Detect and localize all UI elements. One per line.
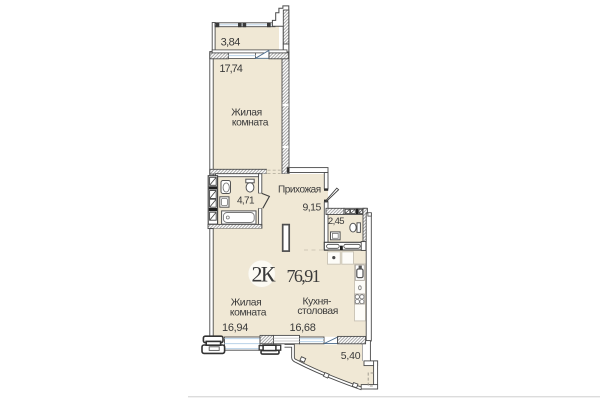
svg-text:столовая: столовая [297,306,338,317]
svg-text:2К: 2К [251,262,275,287]
svg-text:комната: комната [232,117,269,128]
svg-text:3,84: 3,84 [221,36,241,48]
svg-text:76,91: 76,91 [287,266,320,286]
svg-text:4,71: 4,71 [237,195,255,206]
svg-text:5,40: 5,40 [341,350,361,362]
svg-text:17,74: 17,74 [219,63,242,75]
svg-text:16,68: 16,68 [290,322,316,334]
svg-text:комната: комната [230,308,267,319]
svg-text:9,15: 9,15 [303,202,322,214]
svg-text:Прихожая: Прихожая [278,184,321,195]
svg-text:16,94: 16,94 [222,322,248,334]
svg-text:2,45: 2,45 [328,216,344,227]
